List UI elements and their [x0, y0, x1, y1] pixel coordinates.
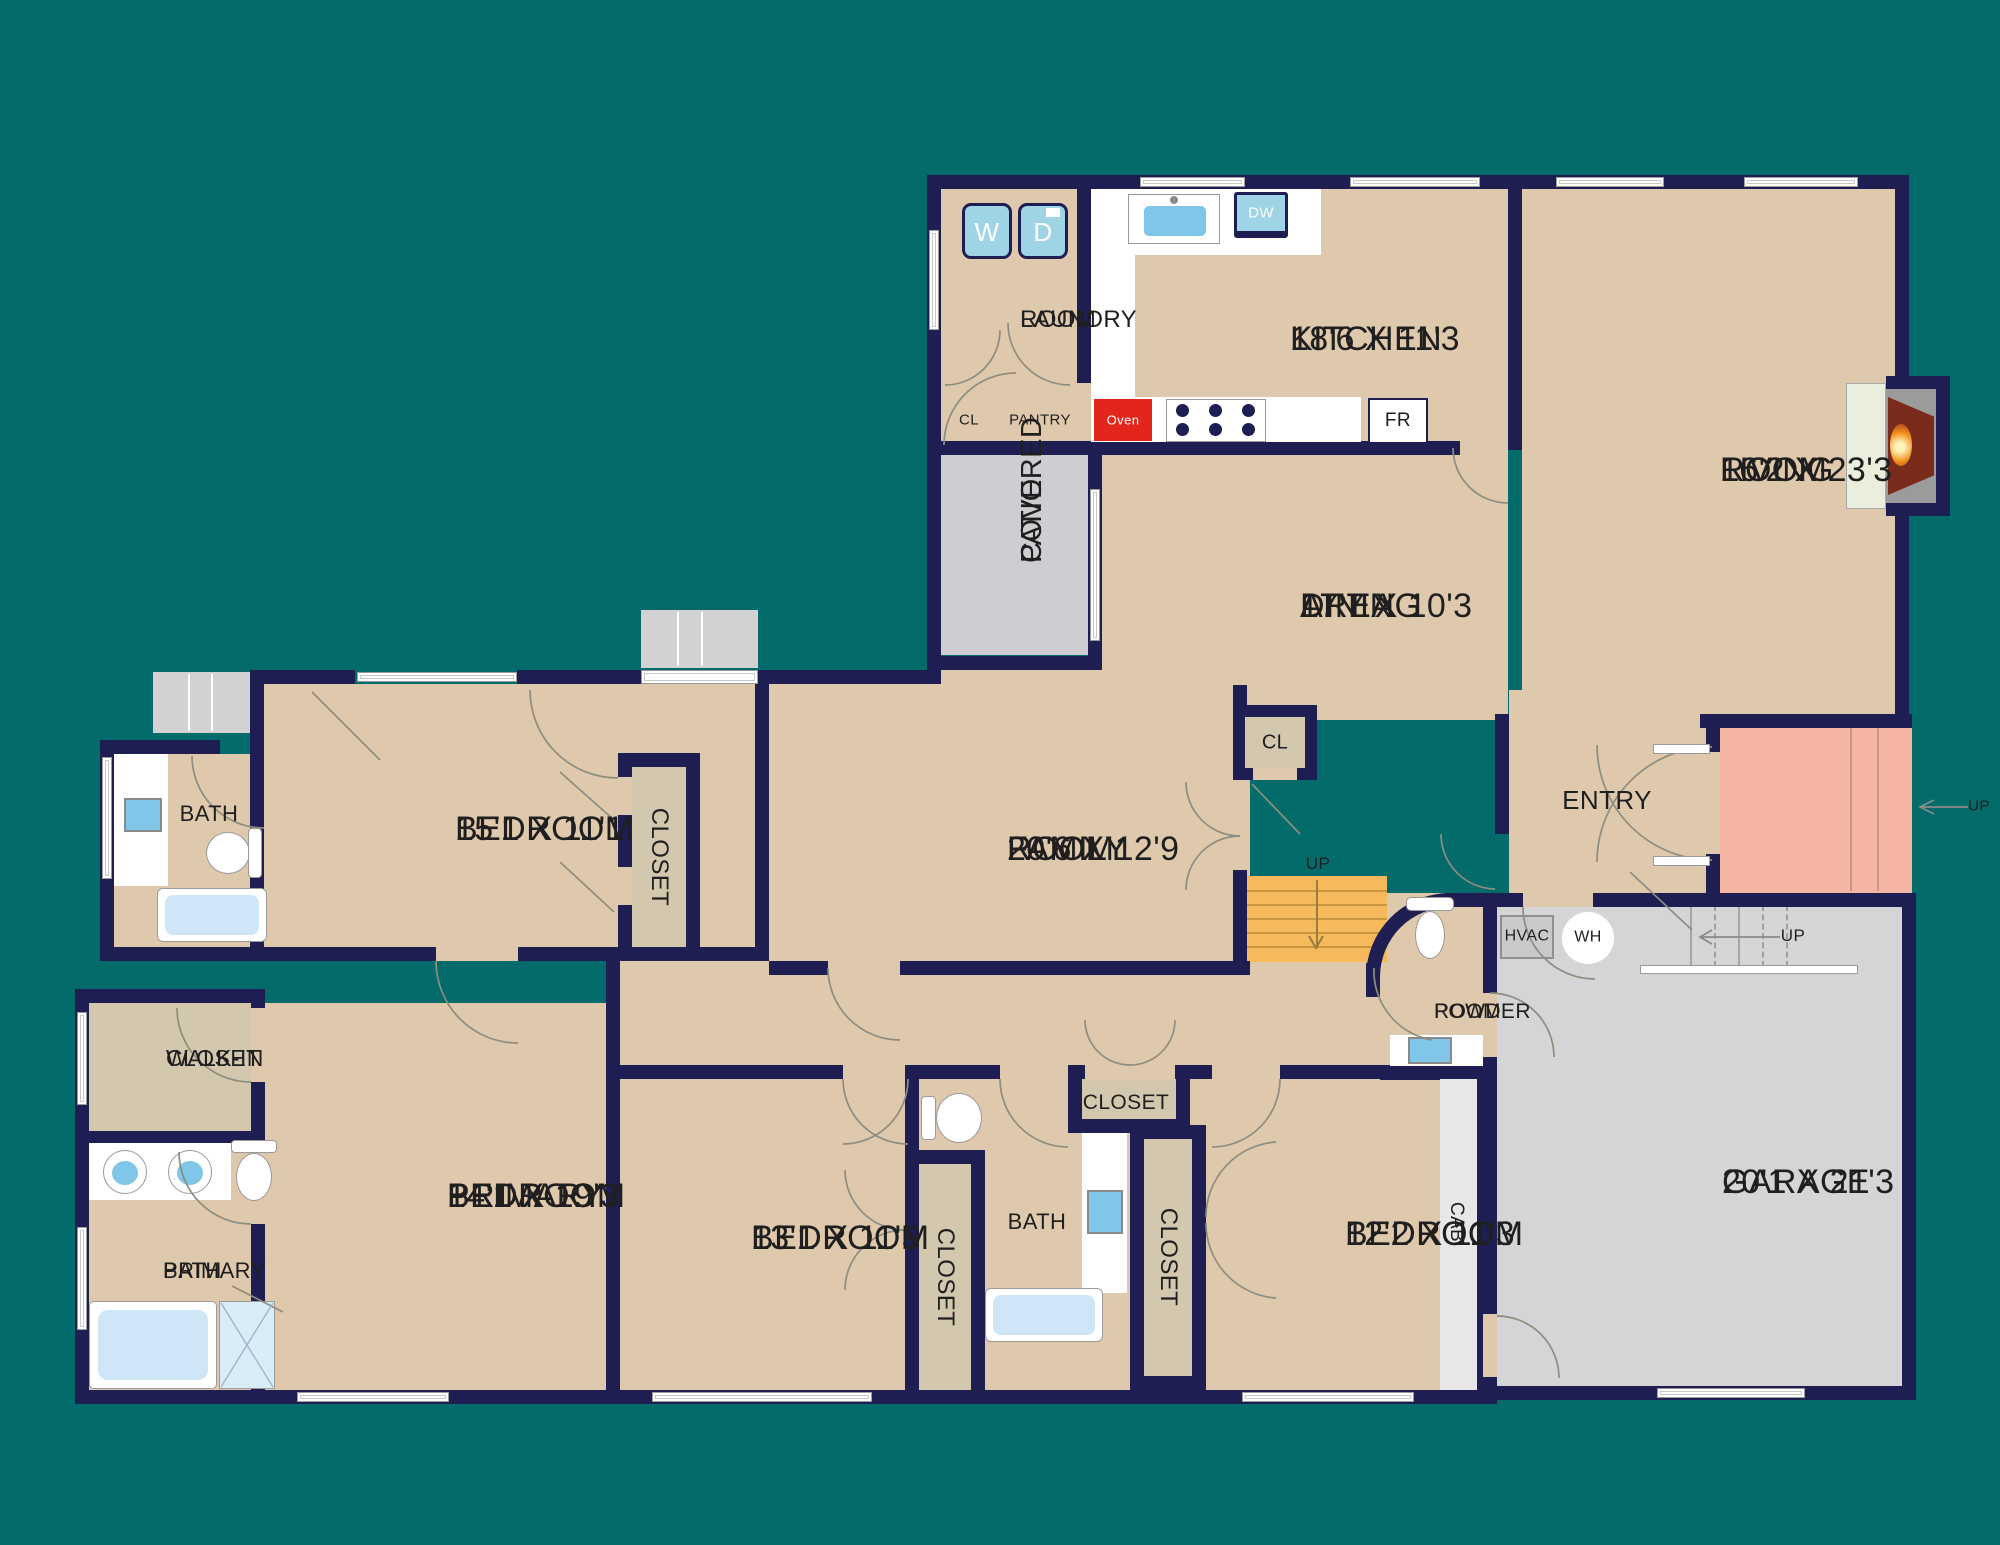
dryer-label: D [1033, 217, 1052, 247]
bath1-label: BATH [180, 801, 239, 827]
oven-label: Oven [1107, 412, 1140, 427]
closet3-label: CLOSET [1154, 1208, 1182, 1306]
laundry-cl-label: CL [959, 411, 979, 428]
porch-up-label: UP [1968, 797, 1990, 814]
entry-label: ENTRY [1562, 785, 1652, 815]
stairs-up-label: UP [1306, 854, 1330, 874]
closet2-label: CLOSET [931, 1228, 959, 1326]
garage-stairs-up-label: UP [1781, 926, 1805, 946]
family-cl-label: CL [1262, 731, 1288, 754]
pantry-label: PANTRY [1009, 411, 1071, 428]
entry-door-leaf [1653, 744, 1710, 754]
door-arcs [0, 0, 2000, 1545]
closet1-label: CLOSET [645, 808, 673, 906]
hvac-label: HVAC [1505, 928, 1550, 947]
hall-closet-label: CLOSET [1083, 1091, 1169, 1115]
floor-plan: LAUNDRYROOM KITCHEN18'6 X 11'3 LIVINGROO… [0, 0, 2000, 1545]
fridge-label: FR [1385, 410, 1411, 432]
water-heater-label: WH [1574, 929, 1601, 948]
cab-label: CAB [1445, 1202, 1467, 1242]
dishwasher-label: DW [1248, 204, 1274, 221]
entry-door-leaf [1653, 856, 1710, 866]
washer-label: W [975, 217, 1000, 247]
bath2-label: BATH [1008, 1209, 1067, 1235]
